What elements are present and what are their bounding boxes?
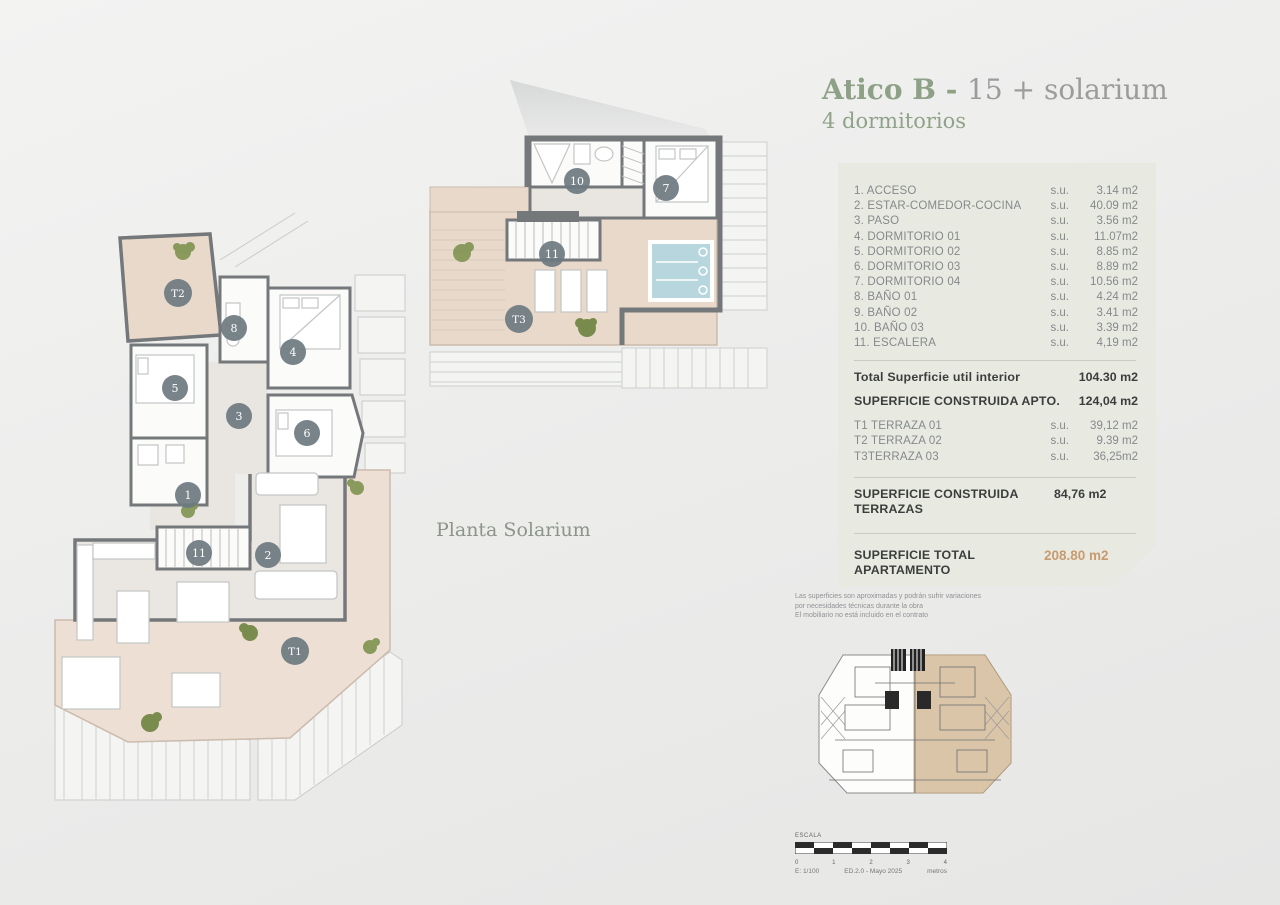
panel-divider [854, 533, 1136, 534]
bed-7-pillow-2 [680, 149, 696, 159]
terraza-row: T1 TERRAZA 01s.u.39,12 m2 [854, 419, 1138, 434]
key-plan [815, 645, 1015, 805]
marker-t2: T2 [164, 279, 192, 307]
svg-text:2: 2 [265, 549, 272, 562]
panel-divider [854, 477, 1136, 478]
svg-text:7: 7 [663, 182, 670, 195]
room-row: 11. ESCALERAs.u.4,19 m2 [854, 336, 1138, 351]
scale-bar: ESCALA 0 1 2 3 4 E: 1/100 ED.2.0 - Mayo … [795, 833, 955, 875]
marker-t1: T1 [281, 637, 309, 665]
marker-t3: T3 [505, 305, 533, 333]
page-title: Atico B - 15 + solarium [822, 74, 1168, 106]
bath-10-wc [595, 147, 613, 161]
utility-washer [138, 445, 158, 465]
main-floor-plan: T2 8 4 5 3 6 1 11 2 T1 [40, 205, 410, 805]
terrace-lounge [62, 657, 120, 709]
marker-8: 8 [221, 315, 247, 341]
key-plan-drawing [815, 645, 1015, 805]
room-row: 1. ACCESOs.u.3.14 m2 [854, 184, 1138, 199]
room-row: 10. BAÑO 03s.u.3.39 m2 [854, 321, 1138, 336]
scale-labels: E: 1/100 ED.2.0 - Mayo 2025 metros [795, 868, 947, 875]
scale-units: metros [927, 868, 947, 875]
svg-text:4: 4 [290, 346, 297, 359]
marker-11: 11 [186, 540, 212, 566]
construida-apto-row: SUPERFICIE CONSTRUIDA APTO. 124,04 m2 [854, 394, 1138, 409]
bed-4-pillow [283, 298, 299, 308]
svg-text:6: 6 [304, 427, 311, 440]
room-row: 2. ESTAR-COMEDOR-COCINAs.u.40.09 m2 [854, 199, 1138, 214]
marker-11-solarium: 11 [539, 241, 565, 267]
title-unit-name: Atico B - [822, 73, 967, 106]
sofa-top [256, 473, 318, 495]
marker-7: 7 [653, 175, 679, 201]
title-unit-number: 15 + solarium [967, 73, 1168, 106]
panel-divider [854, 360, 1136, 361]
kitchen-counter-left [77, 545, 93, 640]
room-row: 7. DORMITORIO 04s.u.10.56 m2 [854, 275, 1138, 290]
kitchen-counter-top [93, 543, 155, 559]
dining-table [177, 582, 229, 622]
room-row: 9. BAÑO 02s.u.3.41 m2 [854, 306, 1138, 321]
page-subtitle: 4 dormitorios [822, 109, 1168, 133]
scale-bar-graphic [795, 842, 947, 854]
marker-4: 4 [280, 339, 306, 365]
terraza-row: T2 TERRAZA 02s.u.9.39 m2 [854, 434, 1138, 449]
room-row: 8. BAÑO 01s.u.4.24 m2 [854, 290, 1138, 305]
svg-text:11: 11 [192, 547, 206, 560]
marker-2: 2 [255, 542, 281, 568]
svg-text:3: 3 [236, 410, 243, 423]
total-apartment-value: 208.80 m2 [1044, 548, 1109, 563]
sun-lounger-3 [587, 270, 607, 312]
bath-10-sink [574, 144, 590, 164]
svg-text:8: 8 [231, 322, 238, 335]
marker-3: 3 [226, 403, 252, 429]
terrace-dining-table [172, 673, 220, 707]
marker-6: 6 [294, 420, 320, 446]
construida-terrazas-row: SUPERFICIE CONSTRUIDA TERRAZAS 84,76 m2 [854, 487, 1138, 517]
bed-4-pillow-2 [302, 298, 318, 308]
marker-1: 1 [175, 482, 201, 508]
marker-5: 5 [162, 375, 188, 401]
bed-6-pillow [278, 413, 288, 429]
room-row: 6. DORMITORIO 03s.u.8.89 m2 [854, 260, 1138, 275]
svg-text:5: 5 [172, 382, 179, 395]
roof-shadow [510, 80, 713, 140]
bed-5-pillow [138, 358, 148, 374]
room-row: 3. PASOs.u.3.56 m2 [854, 214, 1138, 229]
plunge-pool [650, 242, 712, 300]
scale-bar-title: ESCALA [795, 833, 955, 839]
sofa-bottom [255, 571, 337, 599]
planta-solarium-label: Planta Solarium [436, 519, 591, 541]
kitchen-island [117, 591, 149, 643]
marker-10: 10 [564, 168, 590, 194]
areas-panel: 1. ACCESOs.u.3.14 m2 2. ESTAR-COMEDOR-CO… [838, 163, 1156, 587]
terraza-row: T3TERRAZA 03s.u.36,25m2 [854, 450, 1138, 465]
room-row: 4. DORMITORIO 01s.u.11.07m2 [854, 230, 1138, 245]
bed-7-pillow [659, 149, 675, 159]
solarium-plan-drawing: 10 7 11 T3 [422, 80, 772, 390]
main-floor-plan-drawing: T2 8 4 5 3 6 1 11 2 T1 [40, 205, 410, 805]
scale-edition: ED.2.0 - Mayo 2025 [844, 868, 902, 875]
room-row: 5. DORMITORIO 02s.u.8.85 m2 [854, 245, 1138, 260]
scale-ratio: E: 1/100 [795, 868, 819, 875]
total-apartment-row: SUPERFICIE TOTAL APARTAMENTO 208.80 m2 [854, 548, 1138, 578]
living-rug [280, 505, 326, 563]
sun-lounger-2 [561, 270, 581, 312]
utility-sink [166, 445, 184, 463]
svg-text:10: 10 [570, 175, 584, 188]
disclaimer-text: Las superficies son aproximadas y podrán… [795, 592, 1075, 621]
solarium-floor-plan: 10 7 11 T3 [422, 80, 772, 390]
title-block: Atico B - 15 + solarium 4 dormitorios [822, 74, 1168, 133]
svg-text:T1: T1 [288, 646, 302, 658]
stair-landing-wall [517, 211, 579, 222]
svg-text:11: 11 [545, 248, 559, 261]
svg-text:1: 1 [185, 489, 192, 502]
scale-ticks: 0 1 2 3 4 [795, 860, 947, 866]
sun-lounger-1 [535, 270, 555, 312]
total-util-row: Total Superficie util interior 104.30 m2 [854, 370, 1138, 385]
svg-text:T3: T3 [512, 314, 526, 326]
svg-text:T2: T2 [171, 288, 185, 300]
